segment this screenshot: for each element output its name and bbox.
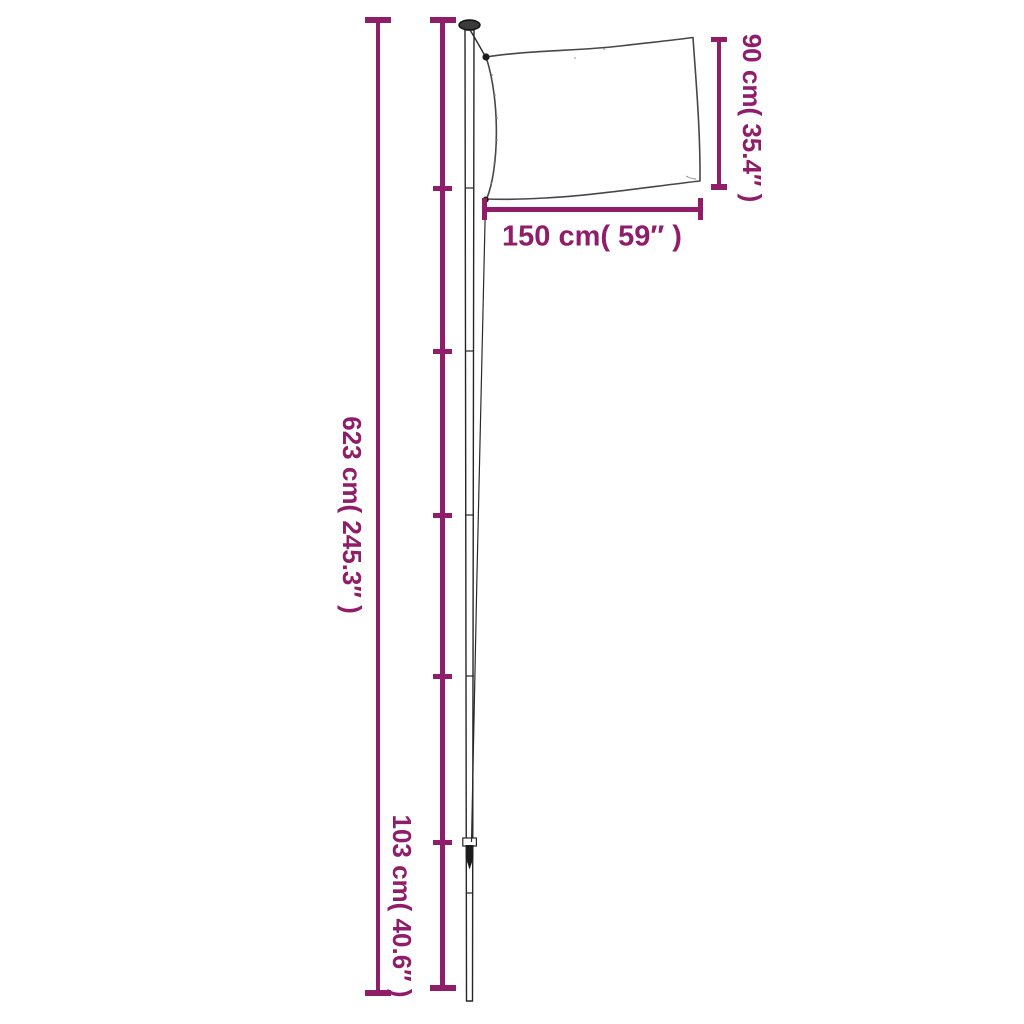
dim-flag-width-line (484, 207, 700, 212)
dim-flag-height-line (717, 39, 722, 187)
flag-outline (486, 38, 700, 200)
dim-section-tick (433, 840, 453, 845)
dimension-diagram: 623 cm( 245.3″ ) 103 cm( 40.6″ ) 90 cm( … (0, 0, 1024, 1024)
flagpole-ground-collar (463, 838, 477, 846)
flagpole-top-cap (459, 20, 480, 30)
dim-pole-sections-cap-top (430, 17, 456, 23)
label-flag-height: 90 cm( 35.4″ ) (739, 34, 765, 203)
label-flag-width: 150 cm( 59″ ) (502, 223, 682, 252)
dim-flag-width-cap-left (482, 198, 488, 220)
dim-total-height-line (376, 20, 381, 993)
label-bottom-section-height: 103 cm( 40.6″ ) (389, 814, 415, 997)
flag-attachment-dot-top (482, 53, 489, 60)
dim-total-height-cap-top (365, 17, 391, 23)
flagpole-art (0, 0, 1024, 1024)
dim-section-tick (433, 513, 453, 518)
dim-section-tick (433, 674, 453, 679)
dim-pole-sections-cap-bottom (430, 985, 456, 991)
label-total-height: 623 cm( 245.3″ ) (339, 416, 365, 613)
dim-section-tick (433, 186, 453, 191)
dim-flag-height-cap-top (711, 37, 727, 43)
dim-flag-height-cap-bottom (711, 184, 727, 190)
dim-section-tick (433, 349, 453, 354)
dim-flag-width-cap-right (698, 198, 704, 220)
